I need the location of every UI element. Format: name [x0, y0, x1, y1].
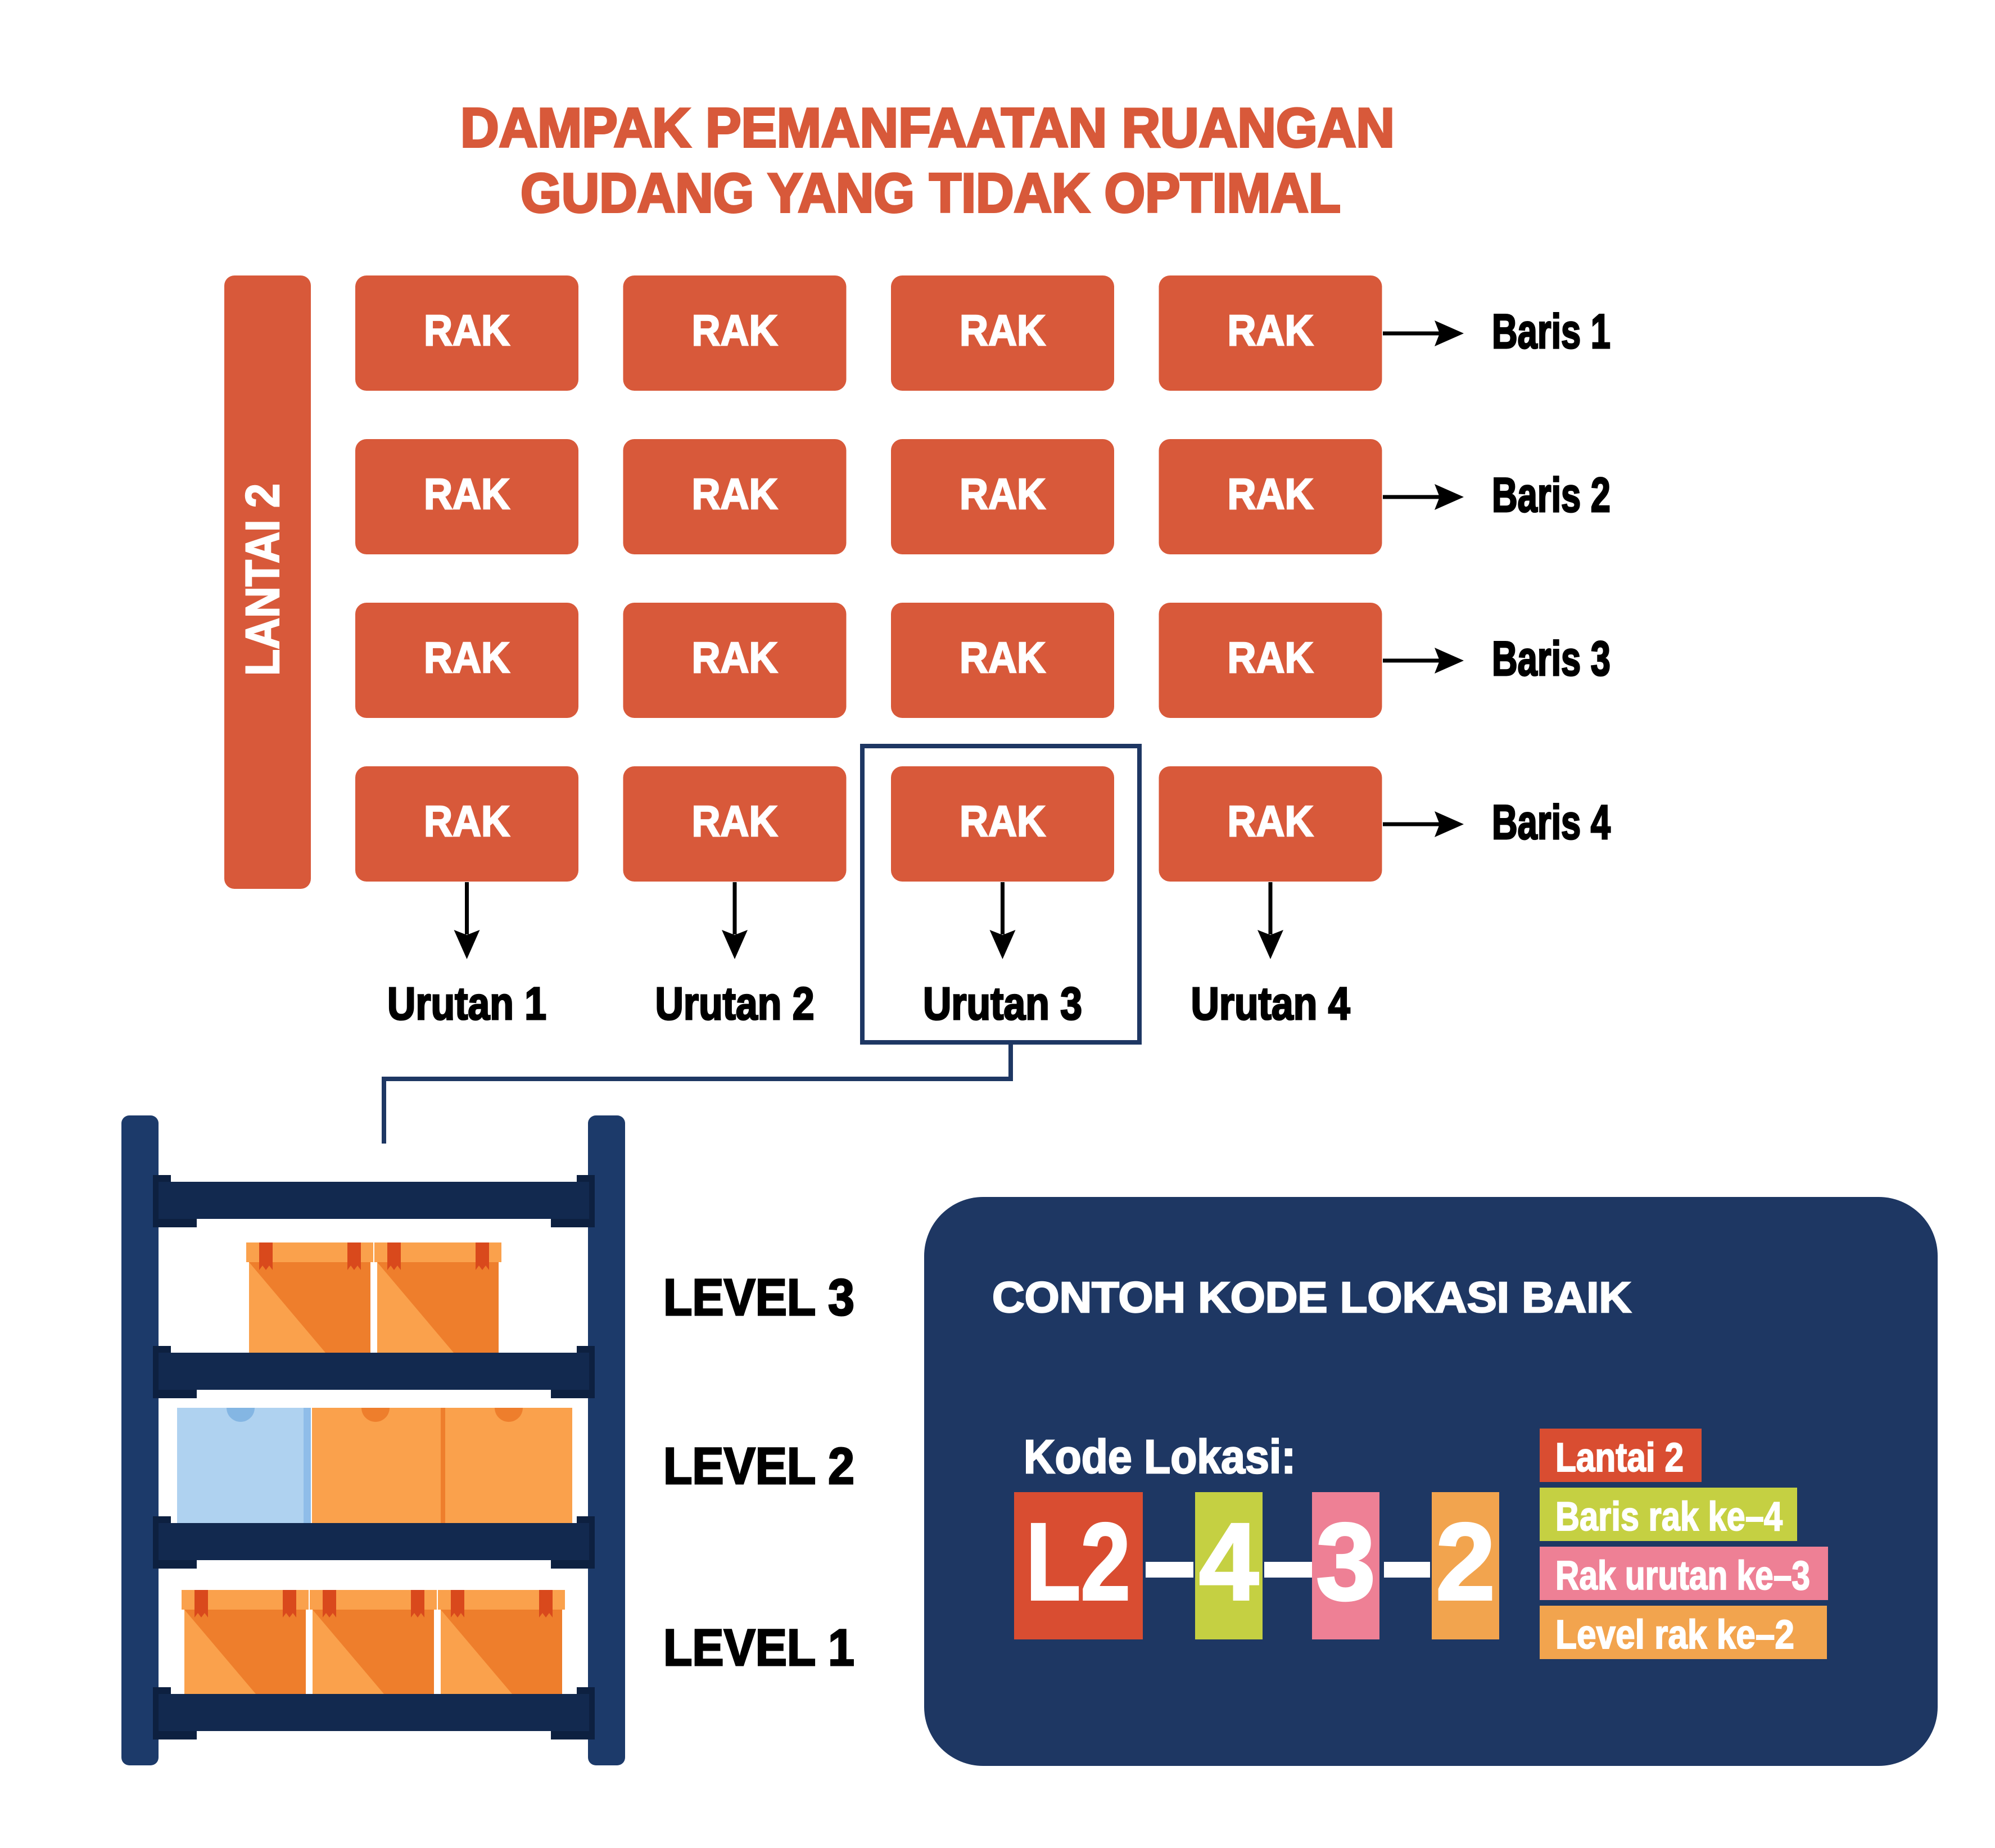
svg-text:DAMPAK PEMANFAATAN RUANGAN: DAMPAK PEMANFAATAN RUANGAN [460, 97, 1395, 159]
svg-text:Baris 4: Baris 4 [1492, 796, 1611, 850]
svg-text:2: 2 [1436, 1501, 1495, 1623]
svg-text:RAK: RAK [424, 634, 510, 682]
svg-text:CONTOH KODE LOKASI BAIK: CONTOH KODE LOKASI BAIK [992, 1273, 1631, 1322]
svg-text:Lantai 2: Lantai 2 [1555, 1435, 1684, 1480]
svg-text:LEVEL 1: LEVEL 1 [663, 1619, 854, 1677]
svg-text:Level rak ke–2: Level rak ke–2 [1555, 1612, 1794, 1657]
svg-text:RAK: RAK [960, 470, 1046, 518]
svg-text:RAK: RAK [960, 306, 1046, 355]
svg-text:RAK: RAK [692, 470, 778, 518]
svg-text:RAK: RAK [1228, 470, 1314, 518]
svg-text:RAK: RAK [1228, 797, 1314, 846]
svg-text:Baris 3: Baris 3 [1492, 632, 1611, 686]
svg-text:RAK: RAK [424, 797, 510, 846]
svg-text:LANTAI 2: LANTAI 2 [236, 484, 289, 676]
svg-text:RAK: RAK [1228, 306, 1314, 355]
svg-text:Urutan 1: Urutan 1 [387, 978, 546, 1029]
svg-text:RAK: RAK [1228, 634, 1314, 682]
svg-text:RAK: RAK [692, 797, 778, 846]
svg-text:LEVEL 2: LEVEL 2 [663, 1438, 854, 1495]
svg-text:RAK: RAK [960, 634, 1046, 682]
svg-text:3: 3 [1316, 1501, 1376, 1623]
svg-text:Urutan 4: Urutan 4 [1191, 978, 1350, 1029]
svg-text:RAK: RAK [692, 306, 778, 355]
svg-text:RAK: RAK [692, 634, 778, 682]
svg-text:Urutan 2: Urutan 2 [655, 978, 815, 1029]
svg-text:Rak urutan ke–3: Rak urutan ke–3 [1555, 1553, 1810, 1598]
svg-text:Kode Lokasi:: Kode Lokasi: [1024, 1430, 1296, 1483]
svg-text:L2: L2 [1026, 1501, 1130, 1623]
svg-text:Baris 1: Baris 1 [1492, 305, 1611, 359]
svg-text:RAK: RAK [424, 306, 510, 355]
svg-text:Urutan 3: Urutan 3 [923, 978, 1082, 1029]
svg-text:Baris rak ke–4: Baris rak ke–4 [1555, 1494, 1783, 1539]
svg-text:LEVEL 3: LEVEL 3 [663, 1269, 854, 1326]
svg-text:4: 4 [1199, 1501, 1259, 1623]
svg-text:GUDANG YANG TIDAK OPTIMAL: GUDANG YANG TIDAK OPTIMAL [521, 162, 1341, 224]
svg-text:RAK: RAK [424, 470, 510, 518]
svg-text:RAK: RAK [960, 797, 1046, 846]
svg-text:Baris 2: Baris 2 [1492, 468, 1611, 522]
